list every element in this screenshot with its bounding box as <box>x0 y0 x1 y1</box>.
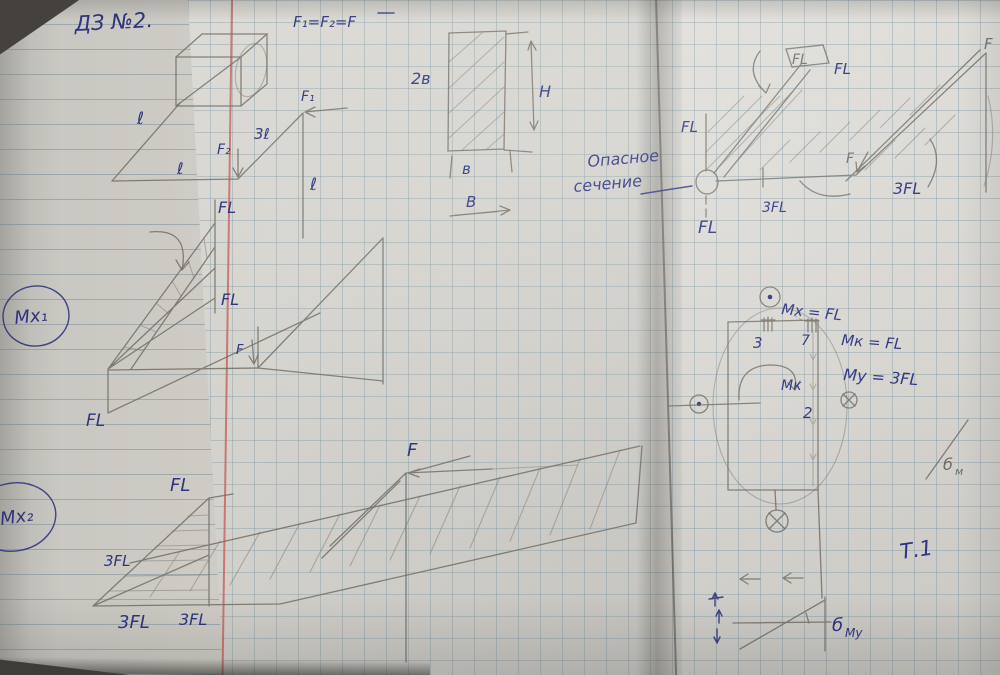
mx2-3fl-left: 3FL <box>104 552 131 570</box>
mx1-diagram: Мх₁ FL FL F FL <box>0 198 383 431</box>
fl-below-label: FL <box>698 218 717 238</box>
homework-title: ДЗ №2. <box>73 8 154 36</box>
right-edge-notes: б м Т.1 <box>898 96 992 564</box>
section-rect <box>448 31 506 151</box>
mx1-hatching <box>124 238 207 351</box>
danger-section-note: Опасное сечение <box>573 146 692 196</box>
force-corner-label: F <box>984 35 993 53</box>
mx1-fl-bottom: FL <box>86 411 105 431</box>
origin-circle <box>696 170 718 194</box>
width-cap-label: В <box>466 193 476 211</box>
hatching-upper <box>706 90 802 170</box>
mx1-badge-label: Мх₁ <box>13 305 48 329</box>
notebook-photo: ДЗ №2. F₁=F₂=F ℓ ℓ F₂ 3ℓ F₁ ℓ Мх₁ FL FL <box>0 0 1000 675</box>
cube-scribble <box>231 40 272 99</box>
mx2-band-hatching <box>150 450 620 597</box>
note-line2: сечение <box>573 171 643 196</box>
height-label: Н <box>539 82 551 101</box>
vector-in-right-cross <box>843 394 855 406</box>
vector-out-top-dot <box>768 295 773 300</box>
beam-3d-sketch-right: FL FL FL FL 3FL F 3FL F <box>681 35 993 238</box>
force2-label: F₂ <box>217 142 231 158</box>
left-page-header: ДЗ №2. F₁=F₂=F <box>73 8 394 36</box>
mx1-curved-arrow <box>150 232 189 270</box>
len-horiz-label: ℓ <box>176 159 184 178</box>
mx1-fl-mid: FL <box>221 290 239 309</box>
len-3l-label: 3ℓ <box>254 125 270 143</box>
mx2-badge-label: Мх₂ <box>0 505 35 530</box>
given-formula: F₁=F₂=F <box>293 13 356 31</box>
stress-arrows <box>709 593 723 643</box>
mk-small-label: Мк <box>781 378 802 394</box>
len-vert-label: ℓ <box>309 175 317 195</box>
force-mid-label: F <box>846 151 855 167</box>
mx1-fl-top: FL <box>218 198 236 217</box>
fl-left-label: FL <box>681 118 698 136</box>
sigma-my-sub: Му <box>845 626 863 640</box>
width-2b-label: 2в <box>411 69 431 88</box>
mx2-diagram: Мх₂ FL 3FL 3FL 3FL F <box>0 440 642 662</box>
mx2-outline <box>93 446 642 606</box>
sigma-my-diagram: б Му <box>709 593 863 651</box>
height-dimension <box>504 32 538 152</box>
t1-label: Т.1 <box>898 536 934 564</box>
width-dimension <box>450 151 512 216</box>
left-axis-line <box>668 403 760 406</box>
sigma-right-sub: м <box>955 465 963 478</box>
handwritten-drawings: ДЗ №2. F₁=F₂=F ℓ ℓ F₂ 3ℓ F₁ ℓ Мх₁ FL FL <box>0 0 1000 675</box>
fl-flag-pencil: FL <box>792 52 808 68</box>
force1-label: F₁ <box>301 89 315 105</box>
mx1-outline <box>108 200 383 413</box>
sigma-right-base: б <box>943 455 953 474</box>
section-analysis: Мх = FL Мк = FL Му = 3FL 3 7 Мк 2 <box>668 287 919 598</box>
3fl-mid-label: 3FL <box>762 200 787 216</box>
mx2-force-label: F <box>407 440 418 461</box>
dimension-smudge <box>455 212 497 215</box>
mx2-extension-line <box>492 465 578 469</box>
force1-arrow <box>305 107 347 117</box>
section-hatching <box>449 33 504 150</box>
mx1-force-label: F <box>236 343 244 358</box>
mx2-3fl-bottom2: 3FL <box>179 610 207 629</box>
note-pointer-line <box>641 186 692 194</box>
point-3-label: 3 <box>753 334 763 352</box>
mx2-force-structure <box>322 456 492 662</box>
mk-equation: Мк = FL <box>841 331 903 353</box>
sigma-my-base: б <box>832 615 843 636</box>
hatching-lower <box>760 85 955 170</box>
len-diag-label: ℓ <box>136 109 144 129</box>
point-2-label: 2 <box>803 404 813 422</box>
cross-section-left: 2в Н в В <box>411 31 551 216</box>
width-b-label: в <box>462 160 471 178</box>
edge-arc <box>984 96 993 186</box>
vector-in-bottom-cross <box>769 513 785 529</box>
sigma-triangle <box>733 597 831 651</box>
mx2-fl-peak: FL <box>170 475 190 496</box>
force2-arrow <box>233 149 243 177</box>
3fl-right-label: 3FL <box>893 179 921 198</box>
section-blob <box>713 308 847 504</box>
note-line1: Опасное <box>587 146 660 171</box>
point-7-label: 7 <box>801 333 810 349</box>
mx2-3fl-bottom1: 3FL <box>118 612 150 633</box>
bottom-arrows <box>740 573 803 584</box>
fl-flag-pen: FL <box>834 60 851 78</box>
section-connectors <box>775 490 822 598</box>
my-equation: Му = 3FL <box>843 365 919 389</box>
